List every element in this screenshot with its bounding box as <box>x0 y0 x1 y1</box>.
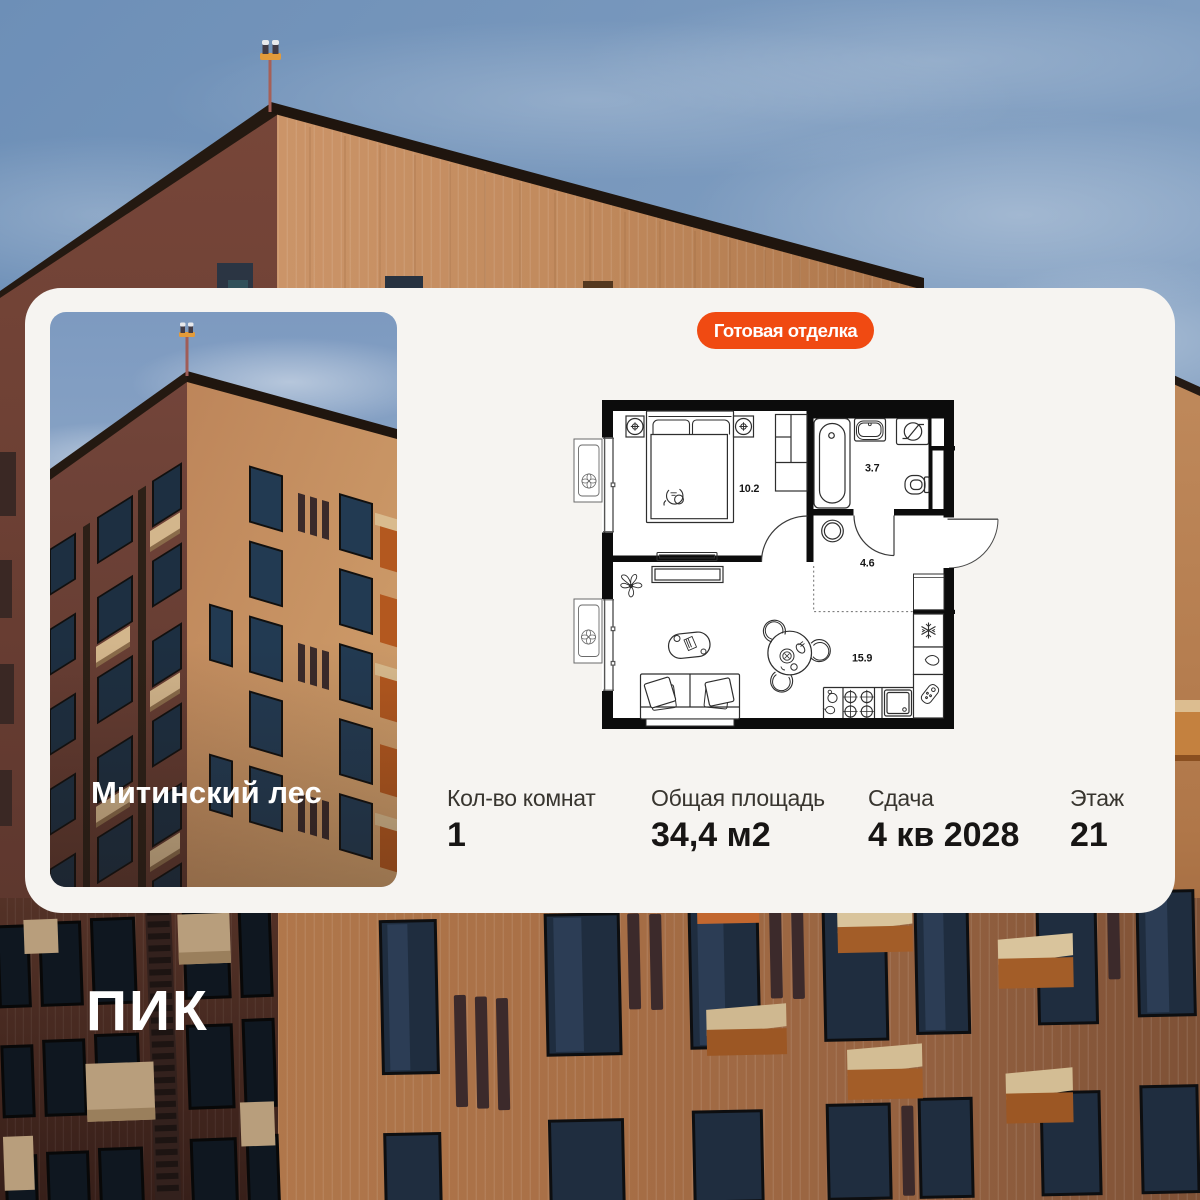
svg-text:4.6: 4.6 <box>860 558 875 570</box>
svg-text:3.7: 3.7 <box>865 463 880 475</box>
svg-text:15.9: 15.9 <box>852 653 872 665</box>
svg-text:10.2: 10.2 <box>739 483 759 495</box>
